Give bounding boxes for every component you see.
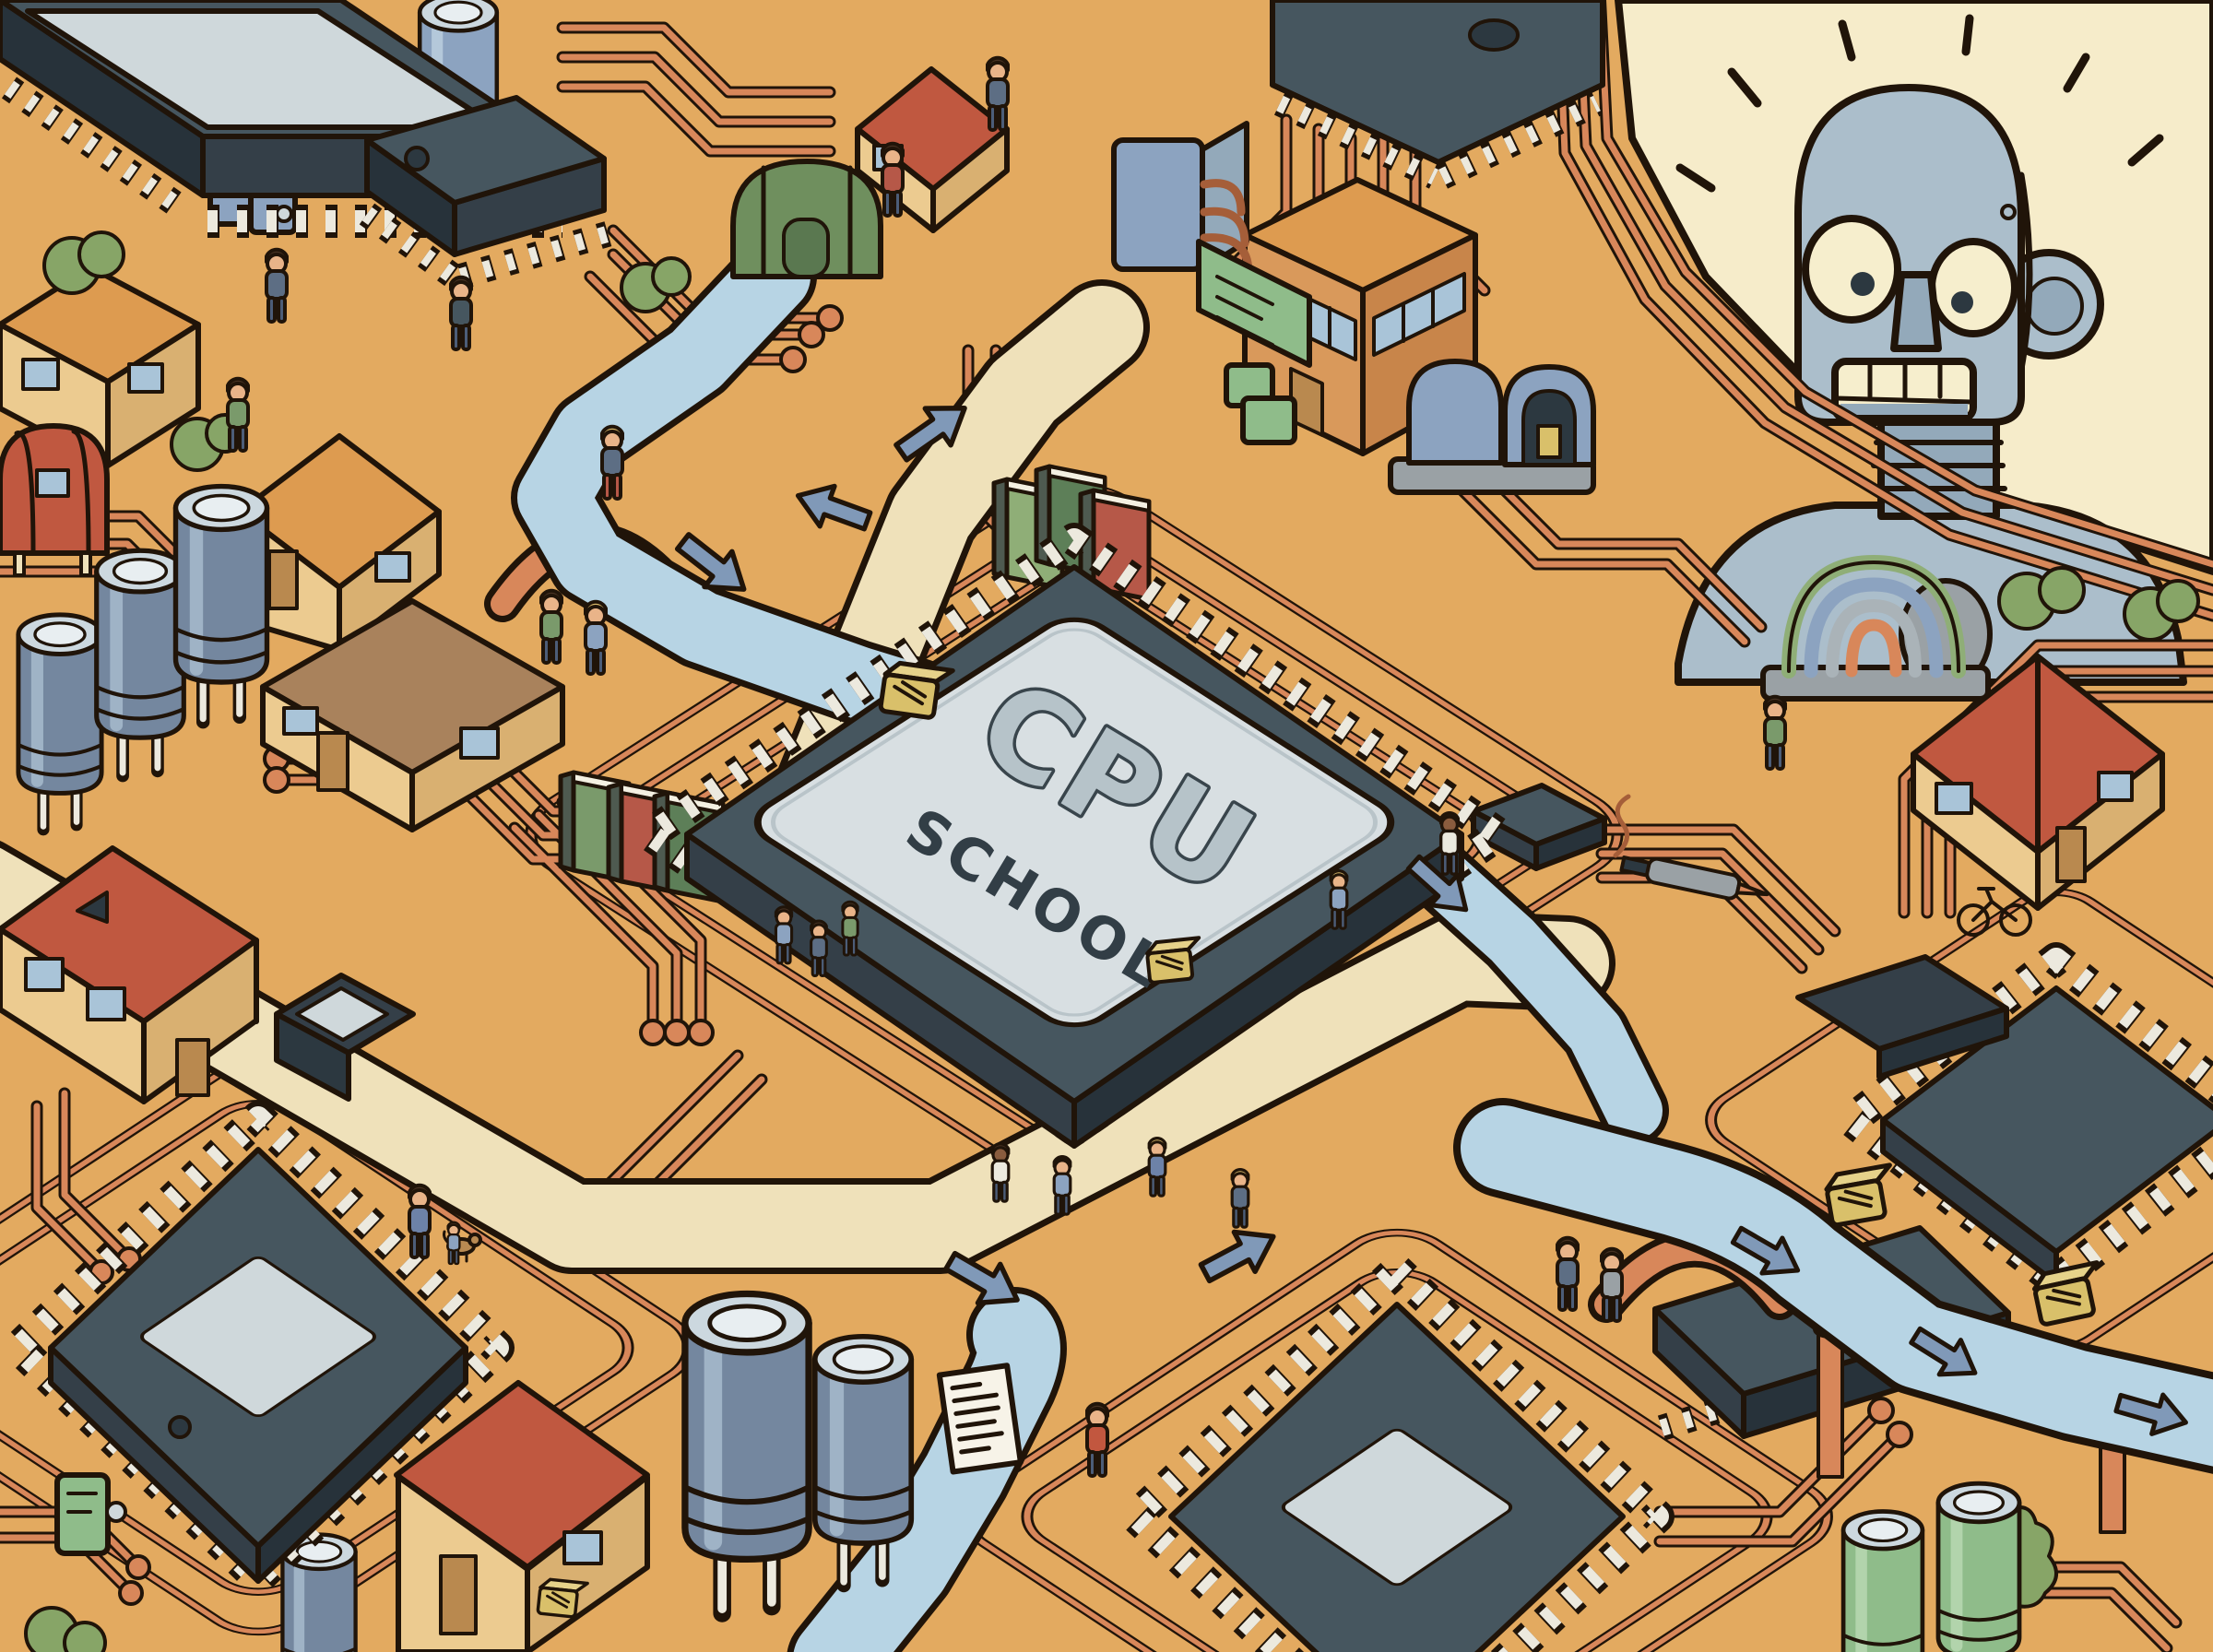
pedestrian	[882, 144, 903, 216]
capacitor-green	[1843, 1512, 1923, 1652]
schoolchild	[1054, 1157, 1071, 1215]
window	[2099, 773, 2132, 800]
pedestrian	[1765, 697, 1785, 769]
door	[269, 551, 297, 608]
schoolchild	[1149, 1139, 1166, 1197]
door	[441, 1556, 476, 1634]
pedestrian	[1087, 1404, 1107, 1476]
pedestrian	[988, 58, 1008, 130]
door	[2057, 828, 2085, 881]
capacitor-green	[1938, 1483, 2019, 1652]
pedestrian	[1557, 1238, 1578, 1310]
illustration-canvas: CPU SCHOOL	[0, 0, 2213, 1652]
pedestrian	[586, 602, 606, 674]
robot-left-eye-icon	[1805, 218, 1898, 320]
blue-arch-component	[1391, 361, 1593, 492]
robot-right-eye-icon	[1932, 242, 2015, 334]
window	[376, 553, 409, 581]
window	[23, 360, 58, 389]
window	[37, 470, 68, 496]
window	[26, 959, 63, 990]
window	[129, 364, 162, 392]
robot-nose-icon	[1894, 275, 1938, 348]
window	[284, 708, 317, 734]
door	[177, 1040, 208, 1095]
pin1-dimple-icon	[406, 147, 428, 170]
window	[1936, 784, 1971, 813]
schoolchild-on-cpu	[1331, 871, 1347, 929]
parent	[409, 1186, 430, 1257]
schoolchild	[811, 921, 827, 975]
schoolchild	[1232, 1170, 1249, 1228]
door	[318, 733, 348, 790]
green-quonset-hut	[733, 161, 881, 277]
schoolchild	[843, 902, 858, 955]
window	[88, 988, 124, 1020]
red-quonset-hut	[0, 426, 107, 575]
document-on-conveyor	[940, 1365, 1021, 1471]
window	[461, 728, 498, 758]
pin1-dot-icon	[170, 1417, 190, 1437]
pedestrian	[541, 591, 562, 663]
robot-mouth	[1835, 361, 1973, 419]
pedestrian	[451, 277, 471, 349]
pedestrian	[228, 379, 248, 451]
pedestrian	[1602, 1249, 1622, 1321]
pin1-dimple-icon	[1470, 20, 1518, 50]
window	[564, 1532, 601, 1563]
gold-contact	[1538, 426, 1560, 457]
child	[448, 1222, 460, 1264]
girl-on-bridge	[602, 427, 622, 499]
schoolchild	[992, 1144, 1009, 1202]
circuit-board-city-illustration: CPU SCHOOL	[0, 0, 2213, 1652]
schoolchild-on-cpu	[1441, 813, 1459, 874]
schoolchild	[775, 907, 791, 963]
pedestrian	[266, 250, 287, 322]
door	[784, 219, 828, 277]
